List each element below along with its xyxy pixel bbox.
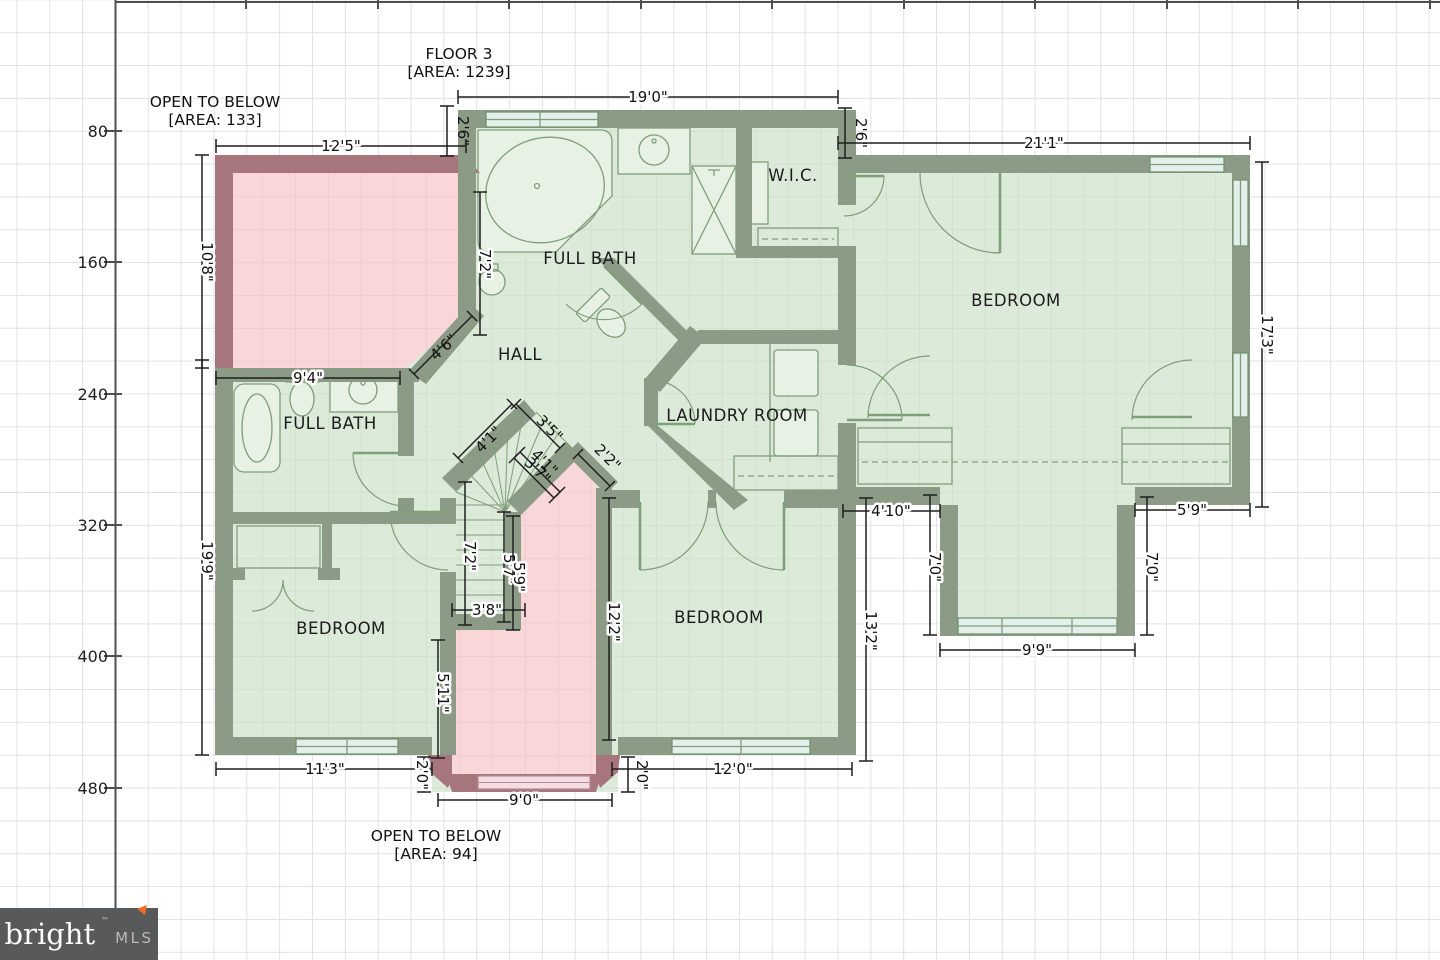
dim-label: 4'10"	[871, 502, 911, 520]
room-label-bedroom-mid: BEDROOM	[674, 608, 764, 627]
dim-label: 17'3"	[1258, 315, 1276, 355]
window	[296, 739, 398, 754]
room-label-wic: W.I.C.	[768, 166, 818, 185]
open-below-bottom-label: OPEN TO BELOW	[371, 827, 502, 845]
y-axis-label: 80	[88, 122, 108, 141]
room-label-full-bath-left: FULL BATH	[283, 414, 377, 433]
red-wall-left	[215, 155, 233, 372]
y-axis-label: 320	[77, 516, 108, 535]
room-label-hall: HALL	[498, 345, 542, 364]
dim-label: 5'11"	[434, 673, 452, 713]
dim-label: 2'0"	[633, 760, 651, 790]
dim-label: 19'0"	[628, 88, 668, 106]
dim-label: 7'0"	[926, 552, 944, 582]
y-axis-label: 240	[77, 385, 108, 404]
dim-label: 11'3"	[305, 760, 345, 778]
window	[1233, 353, 1248, 417]
logo-suffix-text: MLS	[115, 929, 153, 947]
logo-trademark: ™	[101, 916, 109, 925]
dim-label: 12'0"	[713, 760, 753, 778]
floor-plan-canvas: 80 160 240 320 400 480	[0, 0, 1440, 960]
window	[672, 739, 810, 754]
dim-label: 9'0"	[509, 791, 539, 809]
room-label-laundry: LAUNDRY ROOM	[666, 406, 807, 425]
y-axis-label: 400	[77, 647, 108, 666]
open-below-bottom-area: [AREA: 94]	[394, 845, 477, 863]
open-below-top-label: OPEN TO BELOW	[150, 93, 281, 111]
room-label-bedroom-left: BEDROOM	[296, 619, 386, 638]
dim-label: 5'9"	[1177, 501, 1207, 519]
dim-label: 10'8"	[198, 242, 216, 282]
window	[1233, 180, 1248, 246]
room-label-bedroom-right: BEDROOM	[971, 291, 1061, 310]
logo-brand-text: bright	[5, 920, 96, 949]
dim-label: 9'4"	[293, 369, 323, 387]
dim-label: 21'1"	[1024, 134, 1064, 152]
dim-label: 2'6"	[454, 116, 472, 146]
dim-label: 7'0"	[1143, 552, 1161, 582]
y-axis-label: 480	[77, 779, 108, 798]
window	[486, 112, 598, 127]
open-below-top-area: [AREA: 133]	[168, 111, 261, 129]
brightmls-logo: bright™ MLS	[0, 908, 158, 960]
dim-label: 5'9"	[510, 562, 528, 592]
y-axis-label: 160	[77, 253, 108, 272]
dim-label: 3'8"	[472, 601, 502, 619]
plan-title: FLOOR 3	[426, 45, 493, 63]
dim-label: 12'5"	[321, 137, 361, 155]
window	[958, 618, 1117, 634]
open-to-below-top-left	[233, 173, 470, 368]
dim-label: 12'2"	[605, 602, 623, 642]
dim-label: 7'2"	[461, 541, 479, 571]
dim-label: 7'2"	[476, 249, 494, 279]
plan-title-area: [AREA: 1239]	[407, 63, 510, 81]
dim-label: 2'0"	[413, 760, 431, 790]
shower	[692, 166, 736, 254]
window	[1150, 157, 1224, 172]
dim-label: 9'9"	[1022, 641, 1052, 659]
red-wall-top	[215, 155, 480, 173]
floor-plan-drawing: 80 160 240 320 400 480	[0, 0, 1440, 960]
room-label-full-bath-top: FULL BATH	[543, 249, 637, 268]
window-open-below	[478, 776, 590, 789]
dim-label: 13'2"	[862, 611, 880, 651]
dim-label: 19'9"	[198, 541, 216, 581]
